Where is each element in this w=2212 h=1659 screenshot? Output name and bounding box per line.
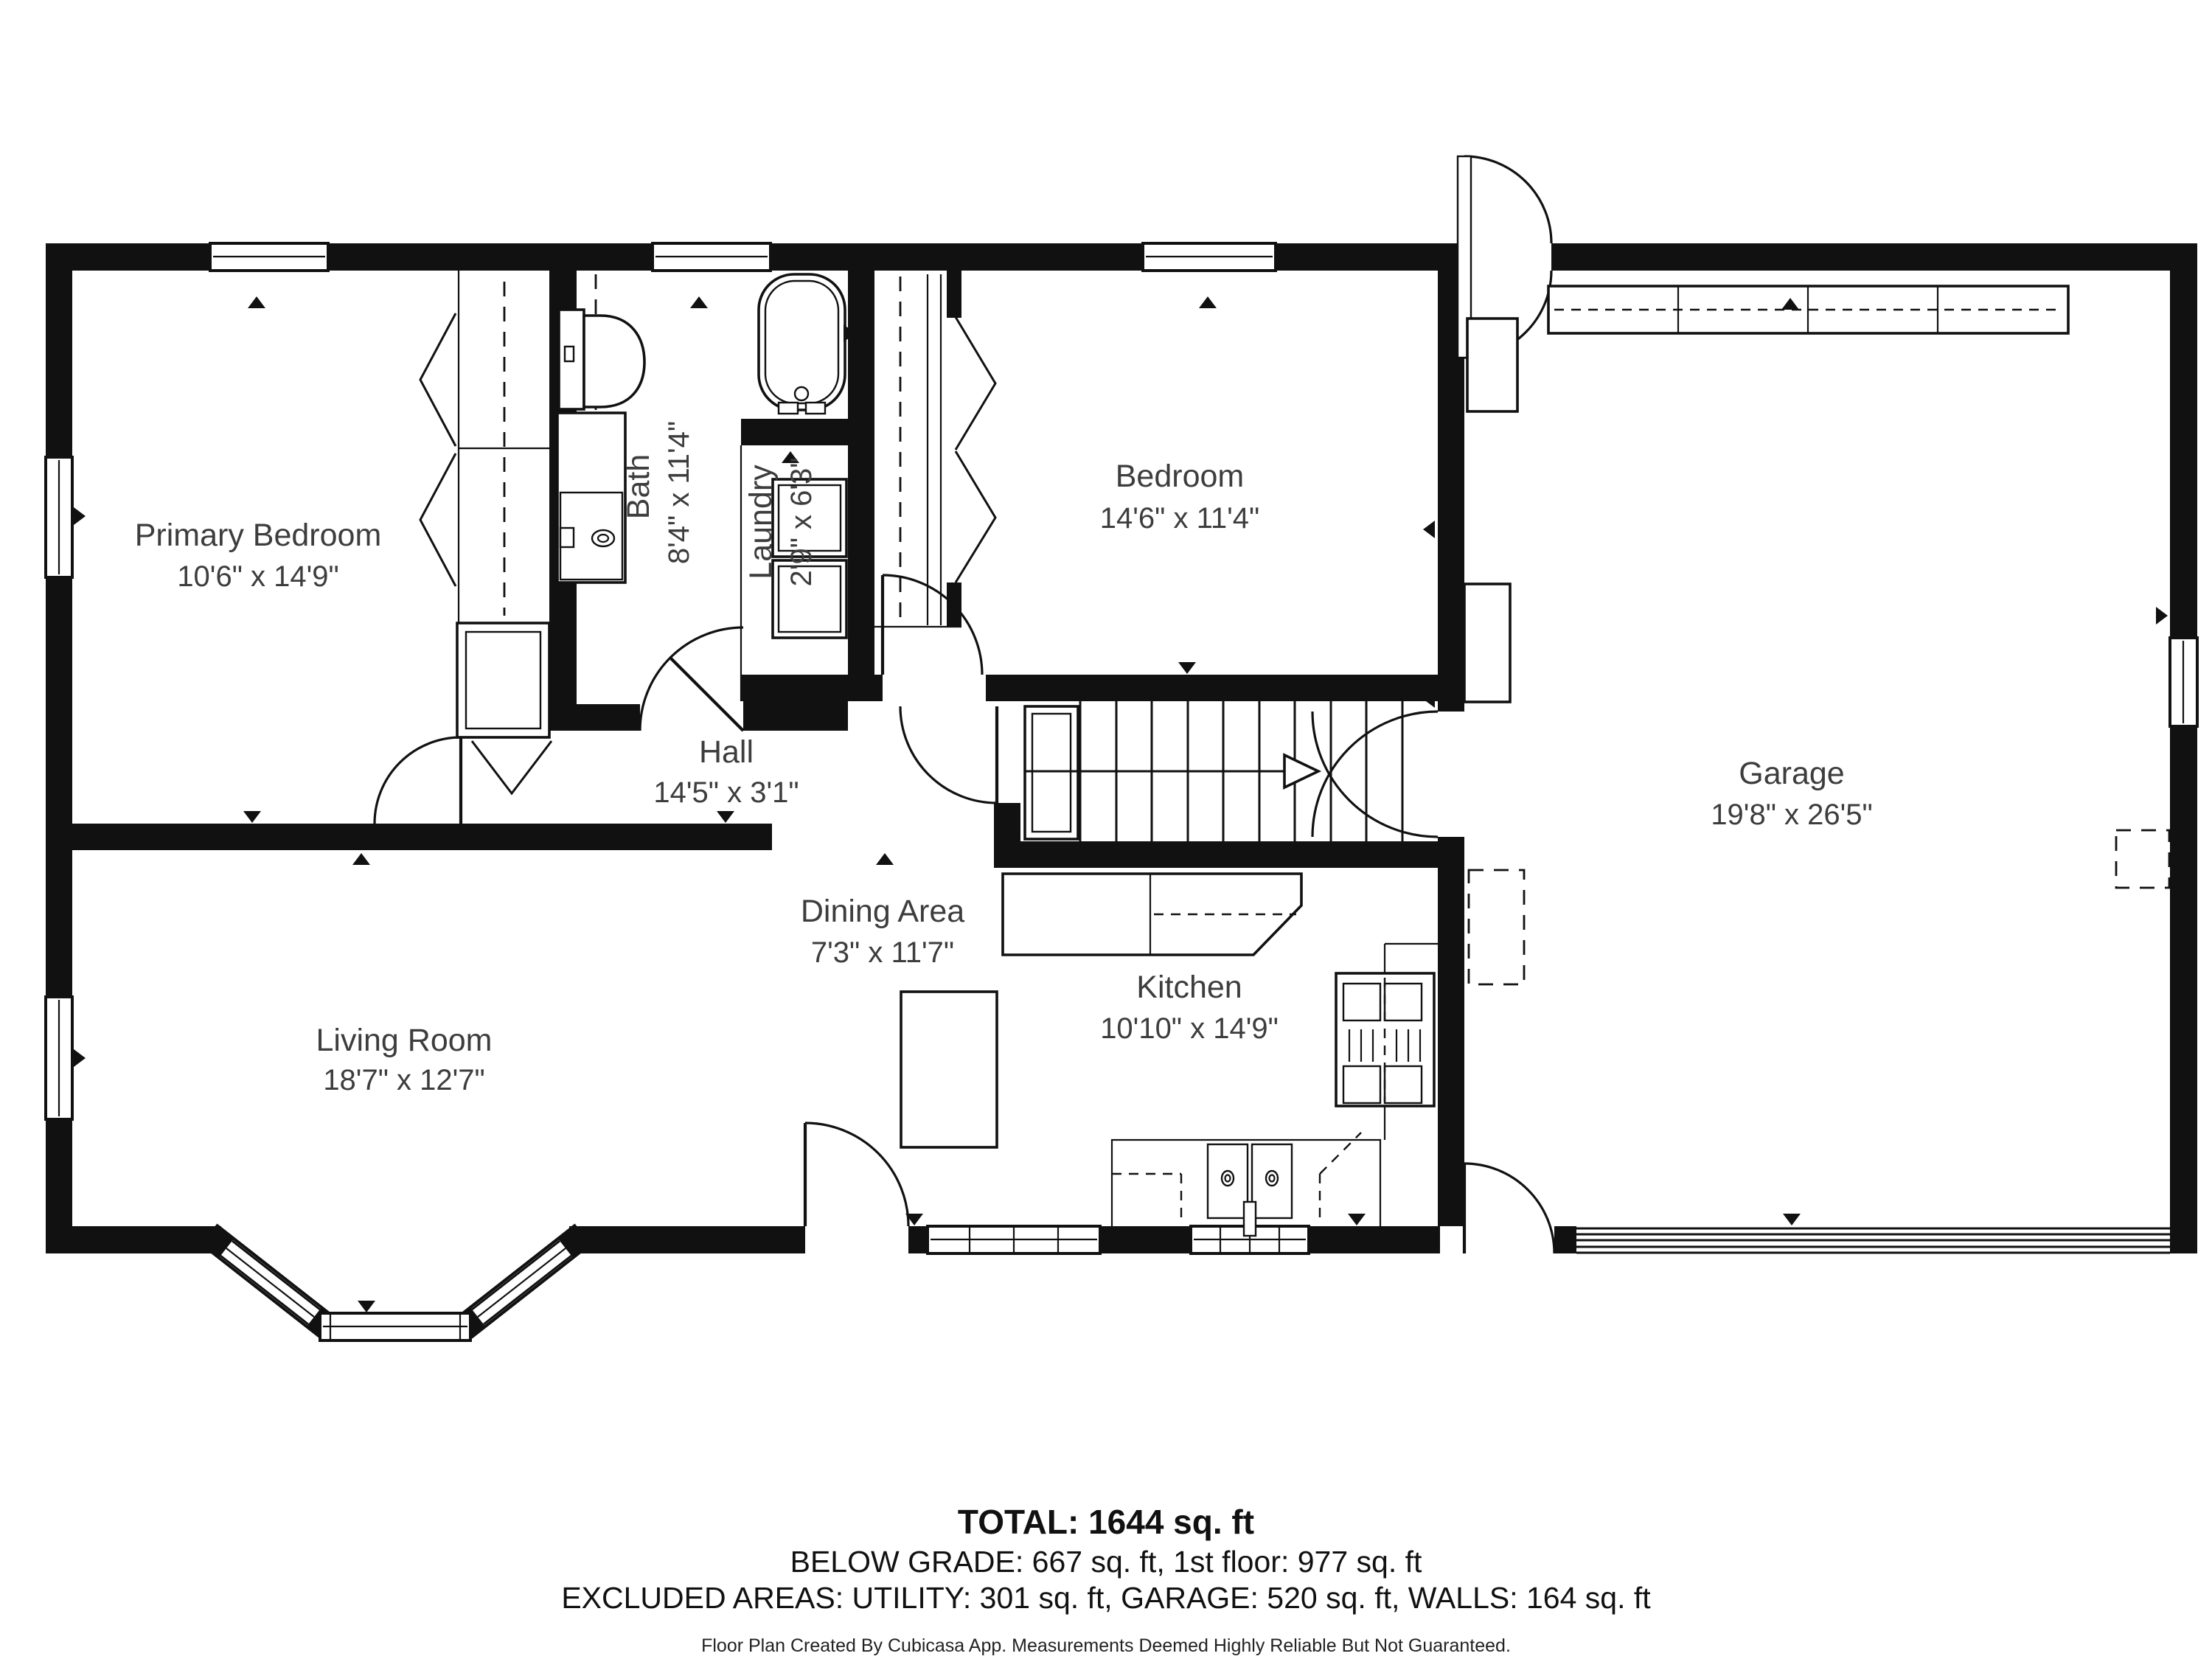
bifold-door <box>956 317 995 450</box>
wall-segment <box>1100 1226 1191 1253</box>
triangle-marker <box>2156 607 2168 625</box>
bifold-door <box>956 451 995 582</box>
room-dims-dining-area: 7'3" x 11'7" <box>811 936 954 969</box>
bedroom-closet <box>874 271 995 627</box>
triangle-marker <box>74 1049 86 1067</box>
wall-segment <box>743 701 848 731</box>
room-label-living-room: Living Room <box>316 1023 493 1058</box>
wall-segment <box>994 803 1020 841</box>
windows <box>46 243 2197 1253</box>
room-dims-living-room: 18'7" x 12'7" <box>323 1064 484 1096</box>
garage-shelf-unit <box>1464 584 1510 702</box>
triangle-marker <box>1199 296 1217 308</box>
door-arc <box>1464 1164 1554 1253</box>
wall-segment <box>46 1226 221 1253</box>
triangle-marker <box>717 811 734 823</box>
toilet-flush-button <box>565 347 574 361</box>
burner <box>1385 984 1422 1020</box>
wall-segment <box>569 1226 805 1253</box>
kitchen-fixtures <box>901 874 1438 1236</box>
triangle-marker <box>74 507 86 525</box>
room-label-kitchen: Kitchen <box>1136 970 1242 1005</box>
bathtub-inner <box>765 281 838 403</box>
door-leaf <box>670 658 743 731</box>
hall-closet <box>457 623 552 793</box>
closet-jamb <box>947 582 961 627</box>
burner <box>1385 1066 1422 1103</box>
floor-plan-page: Primary Bedroom 10'6" x 14'9" Bath 8'4" … <box>0 0 2212 1659</box>
triangle-marker <box>248 296 265 308</box>
stair-direction-arrow <box>1284 755 1318 787</box>
room-dims-hall: 14'5" x 3'1" <box>653 776 799 809</box>
wall-segment <box>328 243 653 271</box>
room-label-laundry: Laundry <box>743 465 779 580</box>
room-dims-primary-bedroom: 10'6" x 14'9" <box>177 560 338 593</box>
excluded-area-text: EXCLUDED AREAS: UTILITY: 301 sq. ft, GAR… <box>561 1581 1651 1615</box>
room-dims-kitchen: 10'10" x 14'9" <box>1100 1012 1279 1045</box>
bay-window-frame <box>226 1248 314 1317</box>
bay-window-frame <box>478 1248 566 1317</box>
toilet-bowl <box>584 316 644 407</box>
wall-segment <box>2170 1226 2197 1253</box>
wall-segment <box>1309 1226 1440 1253</box>
triangle-marker <box>1423 521 1435 538</box>
bifold-door <box>420 453 456 586</box>
triangle-marker <box>690 296 708 308</box>
door-arc <box>375 737 461 824</box>
triangle-marker <box>876 853 894 865</box>
sink-basin <box>1266 1171 1278 1186</box>
room-label-primary-bedroom: Primary Bedroom <box>135 518 382 553</box>
wall-segment <box>2170 726 2197 1253</box>
wall-segment <box>1438 837 1464 1226</box>
wall-segment <box>46 824 772 850</box>
triangle-marker <box>243 811 261 823</box>
wall-segment <box>1551 243 2197 271</box>
triangle-marker <box>358 1301 375 1312</box>
tub-faucet <box>795 387 808 400</box>
wall-segment <box>908 1226 928 1253</box>
tub-handle <box>806 403 825 414</box>
room-label-bedroom: Bedroom <box>1116 459 1244 494</box>
wall-segment <box>741 675 883 701</box>
wall-segment <box>46 243 210 271</box>
sink-faucet <box>560 528 574 547</box>
wall-segment <box>986 675 1438 701</box>
primary-closet <box>420 271 549 623</box>
wall-segment <box>549 704 640 731</box>
burner <box>1343 984 1380 1020</box>
garage-overhead-door <box>1576 1226 2170 1253</box>
triangle-marker <box>352 853 370 865</box>
room-dims-bath: 8'4" x 11'4" <box>663 421 695 564</box>
triangle-marker <box>1783 1214 1801 1225</box>
sink-basin <box>1222 1171 1234 1186</box>
door-arc <box>900 706 997 803</box>
wall-segment <box>1276 243 1444 271</box>
bifold-door <box>472 741 552 793</box>
floor-plan-canvas: Primary Bedroom 10'6" x 14'9" Bath 8'4" … <box>0 0 2212 1659</box>
walls <box>46 243 2197 1253</box>
wall-segment <box>771 243 1143 271</box>
utility-equipment-outline <box>1469 870 1524 984</box>
utility-equipment-outline <box>2116 830 2169 888</box>
disclaimer-text: Floor Plan Created By Cubicasa App. Meas… <box>701 1635 1511 1656</box>
wall-segment <box>46 577 72 997</box>
room-label-garage: Garage <box>1739 756 1844 791</box>
garage-fixtures <box>1464 286 2169 984</box>
tub-handle <box>779 403 798 414</box>
room-dims-garage: 19'8" x 26'5" <box>1711 799 1872 831</box>
door-arc <box>805 1123 908 1226</box>
sink-basin <box>592 530 614 546</box>
kitchen-island <box>901 992 997 1147</box>
garage-shelf-unit <box>1467 319 1517 411</box>
wall-segment <box>741 419 848 445</box>
upper-cabinet-outline <box>1320 1133 1361 1174</box>
room-dims-bedroom: 14'6" x 11'4" <box>1100 502 1259 535</box>
bay-window <box>209 1234 583 1340</box>
wall-segment <box>2170 243 2197 638</box>
closet-jamb <box>947 271 961 318</box>
area-summary: TOTAL: 1644 sq. ft BELOW GRADE: 667 sq. … <box>561 1503 1651 1656</box>
total-area-text: TOTAL: 1644 sq. ft <box>958 1503 1254 1541</box>
wall-segment <box>46 271 72 457</box>
burner <box>1343 1066 1380 1103</box>
sink-faucet <box>1244 1202 1256 1236</box>
door-arc <box>883 575 982 675</box>
room-label-hall: Hall <box>699 734 754 770</box>
bifold-door <box>420 313 456 446</box>
room-label-bath: Bath <box>621 454 656 519</box>
room-label-dining-area: Dining Area <box>801 894 964 929</box>
under-stair-closet-inner <box>1032 714 1071 832</box>
wall-segment <box>1554 1226 1576 1253</box>
triangle-marker <box>1178 662 1196 674</box>
room-dims-laundry: 2'9" x 6'3" <box>785 458 818 587</box>
door-arc <box>1464 156 1551 243</box>
triangle-marker <box>1348 1214 1366 1225</box>
closet-shelf <box>466 632 540 728</box>
wall-segment <box>994 841 1438 868</box>
staircase <box>1025 701 1402 841</box>
grade-area-text: BELOW GRADE: 667 sq. ft, 1st floor: 977 … <box>790 1545 1422 1579</box>
room-labels: Primary Bedroom 10'6" x 14'9" Bath 8'4" … <box>135 421 1873 1096</box>
